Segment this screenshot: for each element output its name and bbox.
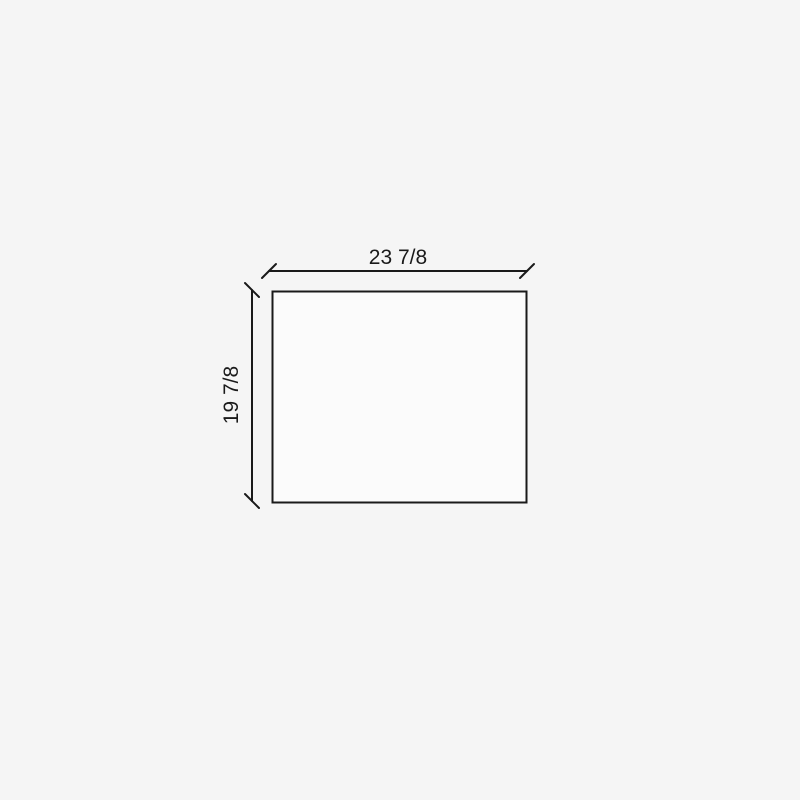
height-dimension: 19 7/8: [220, 283, 259, 508]
panel-rectangle: [273, 292, 527, 503]
dimension-drawing: 23 7/8 19 7/8: [0, 0, 800, 800]
height-dimension-label: 19 7/8: [220, 366, 243, 424]
width-dimension-label: 23 7/8: [369, 246, 427, 269]
width-dimension: 23 7/8: [262, 246, 534, 278]
